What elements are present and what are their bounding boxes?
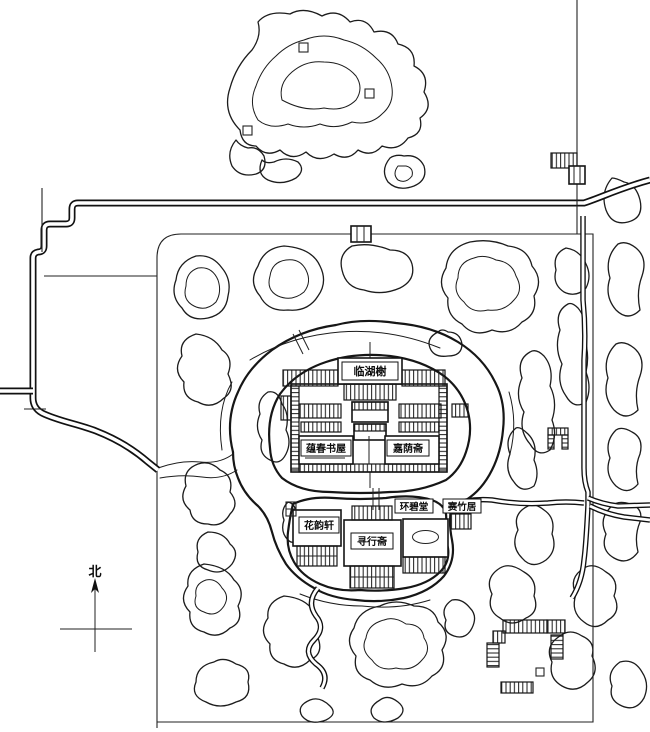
southeast-compound	[487, 620, 565, 693]
inner-hills	[174, 241, 647, 723]
hilltop-pavilion-icon	[299, 43, 308, 52]
middle-hall-building	[403, 519, 448, 557]
east-court-gallery	[399, 404, 441, 418]
label-north-waterside-pavilion: 临湖榭	[354, 364, 387, 378]
east-hill-pavilion	[548, 428, 568, 435]
label-west-study: 蕴春书屋	[306, 442, 346, 455]
island-east-pavilion	[452, 404, 468, 417]
axis-gallery	[344, 384, 396, 400]
label-bamboo-cottage: 赛竹居	[447, 501, 477, 513]
label-middle-hall: 环碧堂	[400, 501, 429, 513]
south-studio-north-porch	[352, 506, 392, 520]
west-court-gallery	[299, 404, 341, 418]
east-stream	[446, 216, 650, 598]
label-east-studio: 嘉荫斋	[392, 442, 424, 455]
south-corridor	[299, 464, 439, 472]
middle-hall-porch	[403, 557, 445, 573]
east-fence-gate	[569, 166, 585, 184]
west-wing	[283, 370, 338, 386]
west-corridor	[291, 386, 299, 470]
north-hill-cluster	[228, 10, 429, 188]
garden-plan-figure: 北 临湖榭 蕴春书屋 嘉荫斋 花韵轩 寻行斋 环碧堂 赛竹居	[0, 0, 650, 732]
east-corridor	[439, 386, 447, 470]
compass: 北	[60, 565, 132, 652]
bamboo-cottage-building	[451, 514, 471, 529]
east-wing	[402, 370, 445, 386]
hilltop-pavilion-icon	[365, 89, 374, 98]
northwest-bridge	[293, 330, 309, 354]
hilltop-pavilion-icon	[243, 126, 252, 135]
compass-north-label: 北	[88, 565, 101, 580]
west-annex	[281, 396, 291, 420]
label-flower-pavilion: 花韵轩	[304, 519, 334, 532]
north-wall-gate	[351, 226, 371, 242]
label-south-studio: 寻行斋	[357, 535, 388, 548]
